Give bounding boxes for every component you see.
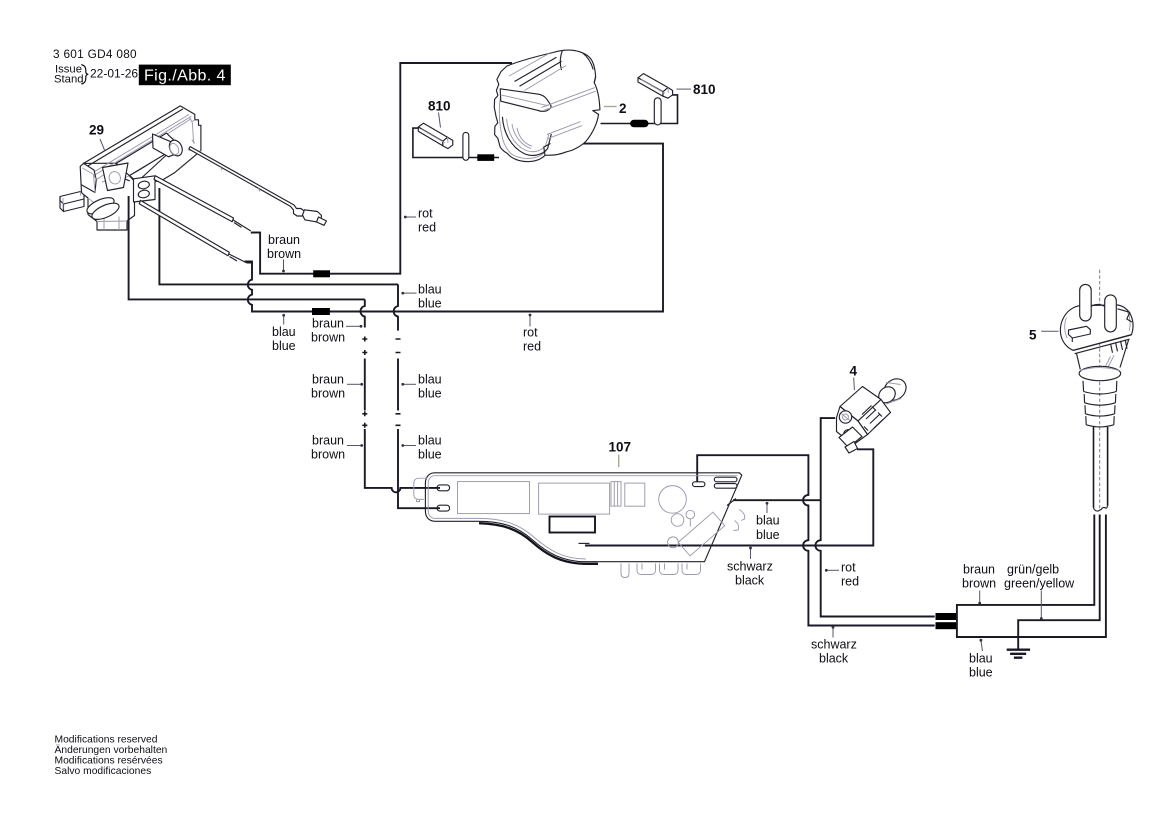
svg-text:blue: blue (756, 528, 780, 542)
svg-text:blau: blau (272, 325, 296, 339)
svg-text:Modifications resérvées: Modifications resérvées (55, 756, 163, 767)
svg-text:29: 29 (89, 123, 104, 138)
svg-text:blue: blue (418, 387, 442, 401)
svg-text:blau: blau (418, 434, 442, 448)
svg-text:braun: braun (312, 434, 344, 448)
svg-text:braun: braun (268, 233, 300, 247)
svg-text:grün/gelb: grün/gelb (1007, 563, 1059, 577)
svg-text:brown: brown (311, 387, 345, 401)
svg-text:red: red (841, 575, 859, 589)
svg-text:brown: brown (311, 331, 345, 345)
svg-text:5: 5 (1029, 328, 1037, 343)
svg-text:black: black (819, 652, 849, 666)
svg-text:braun: braun (312, 373, 344, 387)
svg-text:Fig./Abb. 4: Fig./Abb. 4 (144, 68, 226, 85)
svg-text:810: 810 (428, 99, 451, 114)
svg-text:braun: braun (963, 563, 995, 577)
svg-text:schwarz: schwarz (727, 560, 773, 574)
svg-text:schwarz: schwarz (811, 638, 857, 652)
svg-text:4: 4 (850, 364, 858, 379)
svg-text:green/yellow: green/yellow (1004, 577, 1075, 591)
svg-text:brown: brown (267, 247, 301, 261)
svg-text:rot: rot (841, 561, 856, 575)
svg-text:Salvo modificaciones: Salvo modificaciones (55, 766, 152, 777)
svg-text:22-01-26: 22-01-26 (90, 67, 138, 81)
svg-text:brown: brown (311, 448, 345, 462)
svg-text:blue: blue (272, 339, 296, 353)
svg-text:2: 2 (619, 101, 627, 116)
svg-text:blau: blau (969, 652, 993, 666)
svg-text:blue: blue (418, 297, 442, 311)
svg-text:red: red (418, 221, 436, 235)
svg-text:blue: blue (969, 666, 993, 680)
svg-text:brown: brown (962, 577, 996, 591)
svg-text:red: red (523, 340, 541, 354)
svg-text:810: 810 (693, 82, 716, 97)
svg-text:rot: rot (418, 207, 433, 221)
svg-text:braun: braun (312, 317, 344, 331)
svg-text:blau: blau (756, 514, 780, 528)
svg-text:3 601 GD4 080: 3 601 GD4 080 (53, 47, 137, 61)
svg-text:black: black (735, 574, 765, 588)
svg-text:Stand: Stand (54, 74, 84, 86)
svg-text:blau: blau (418, 373, 442, 387)
svg-text:rot: rot (523, 326, 538, 340)
svg-text:107: 107 (609, 440, 632, 455)
svg-text:blue: blue (418, 448, 442, 462)
svg-text:Änderungen vorbehalten: Änderungen vorbehalten (55, 744, 168, 756)
svg-text:Modifications reserved: Modifications reserved (55, 735, 158, 746)
svg-text:blau: blau (418, 283, 442, 297)
